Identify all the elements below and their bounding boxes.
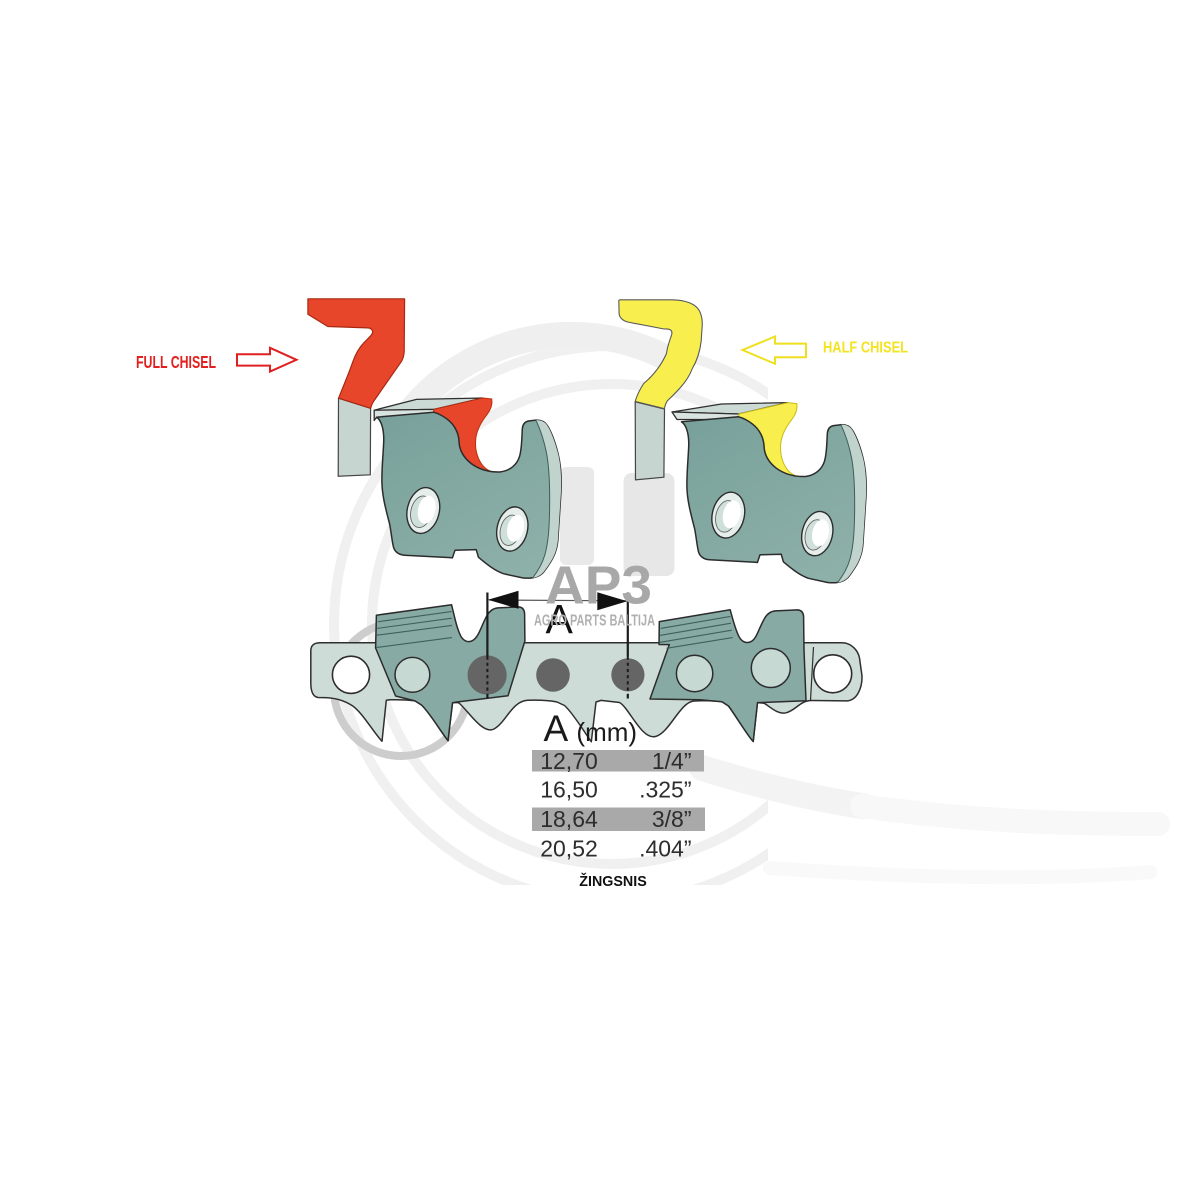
svg-text:3/8”: 3/8” — [652, 806, 692, 832]
svg-text:20,52: 20,52 — [540, 836, 598, 862]
svg-text:FULL CHISEL: FULL CHISEL — [136, 352, 216, 372]
svg-text:HALF CHISEL: HALF CHISEL — [823, 340, 908, 357]
svg-text:18,64: 18,64 — [540, 806, 598, 832]
svg-text:.404”: .404” — [639, 836, 691, 862]
svg-text:.325”: .325” — [639, 777, 691, 803]
svg-text:AP3: AP3 — [545, 556, 652, 616]
svg-text:AGRO PARTS BALTIJA: AGRO PARTS BALTIJA — [534, 612, 655, 629]
svg-text:1/4”: 1/4” — [652, 748, 692, 774]
svg-text:ŽINGSNIS: ŽINGSNIS — [579, 872, 647, 890]
svg-text:12,70: 12,70 — [540, 748, 598, 774]
svg-text:16,50: 16,50 — [540, 777, 598, 803]
